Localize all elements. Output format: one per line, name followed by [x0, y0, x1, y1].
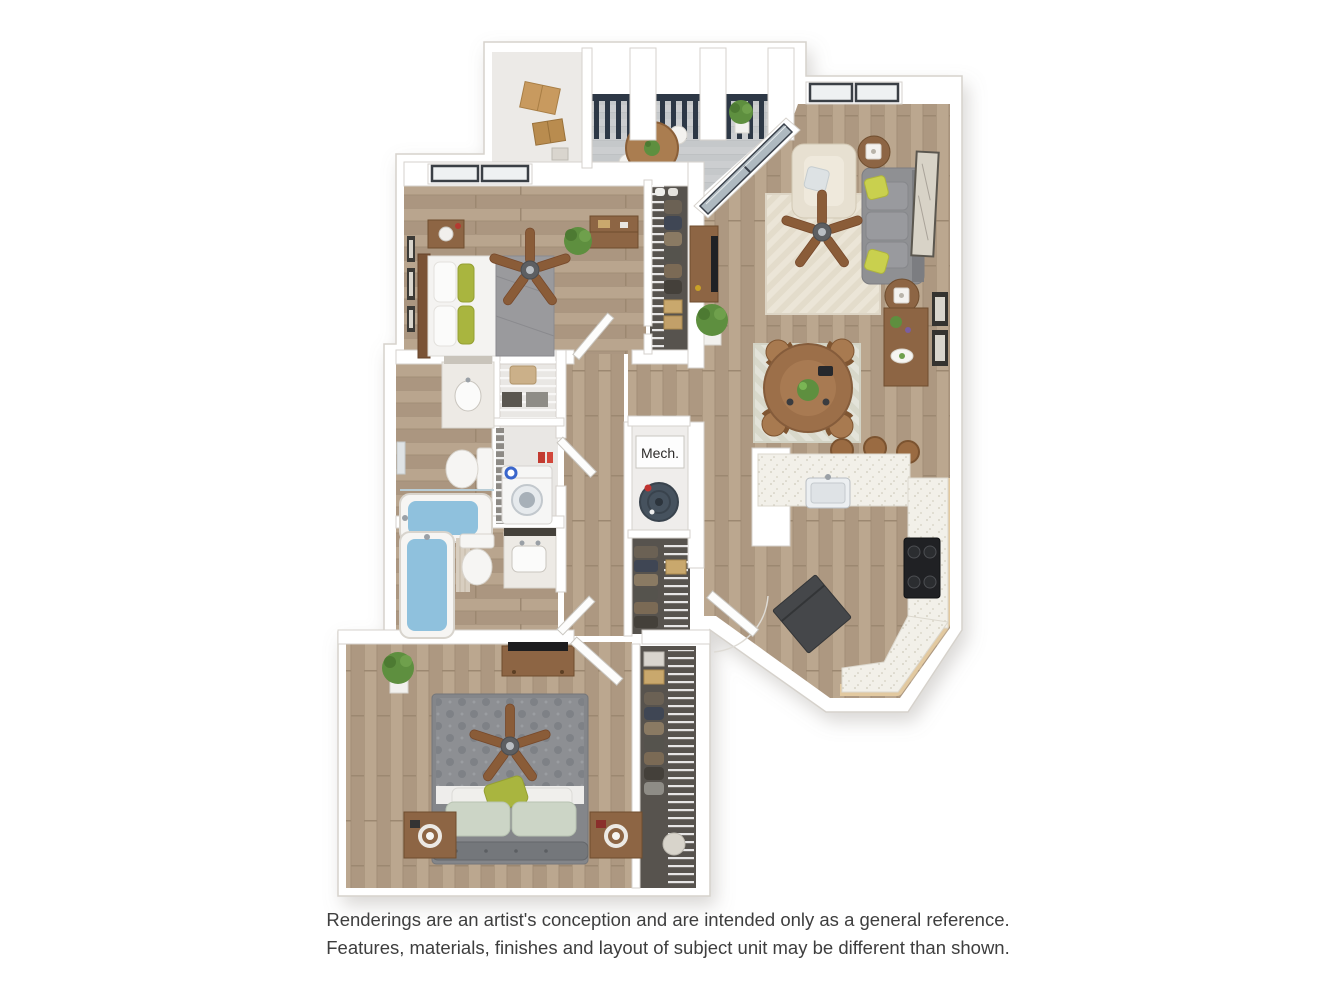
towel-bar [397, 442, 405, 474]
hanging-clothes [644, 692, 664, 795]
detergent-bottle [547, 452, 553, 463]
detergent-bottle [538, 452, 545, 463]
laundry-basket [663, 833, 685, 855]
nightstand [428, 220, 464, 248]
bedroom-1-window [428, 164, 532, 184]
vanity [504, 528, 556, 588]
wall-art-frames [407, 236, 415, 332]
water-heater [640, 483, 678, 521]
mech-label: Mech. [641, 445, 679, 461]
washer [502, 466, 552, 524]
dresser [590, 216, 638, 248]
potted-plant [564, 227, 592, 255]
tv-console [502, 642, 574, 676]
side-table-with-lamp [858, 136, 890, 168]
console-table [884, 308, 928, 386]
disclaimer-line-2: Features, materials, finishes and layout… [0, 934, 1336, 962]
hallway-floor [564, 354, 624, 636]
balcony-pillar [700, 48, 726, 140]
balcony-pillar [630, 48, 656, 140]
hat-box [664, 300, 682, 313]
floor-plan-page: Mech. [0, 0, 1336, 1002]
disclaimer-line-1: Renderings are an artist's conception an… [0, 906, 1336, 934]
mech-sign: Mech. [636, 436, 684, 468]
floor-plan-rendering: Mech. [0, 0, 1336, 1002]
balcony-railing [590, 101, 794, 139]
nightstand [404, 812, 456, 858]
stove [904, 538, 940, 598]
linen-closet [500, 358, 556, 418]
walk-in-closet-1 [652, 184, 682, 352]
toilet [446, 448, 493, 490]
toilet [460, 534, 494, 585]
leaning-art-frame [911, 151, 938, 256]
living-room-window [806, 82, 902, 104]
dining-area [754, 333, 860, 444]
nightstand [590, 812, 642, 858]
bathtub [400, 532, 454, 638]
media-console [690, 226, 718, 302]
disclaimer: Renderings are an artist's conception an… [0, 906, 1336, 962]
dining-table [764, 344, 852, 432]
kitchen-sink [806, 474, 850, 508]
vanity [442, 356, 494, 428]
